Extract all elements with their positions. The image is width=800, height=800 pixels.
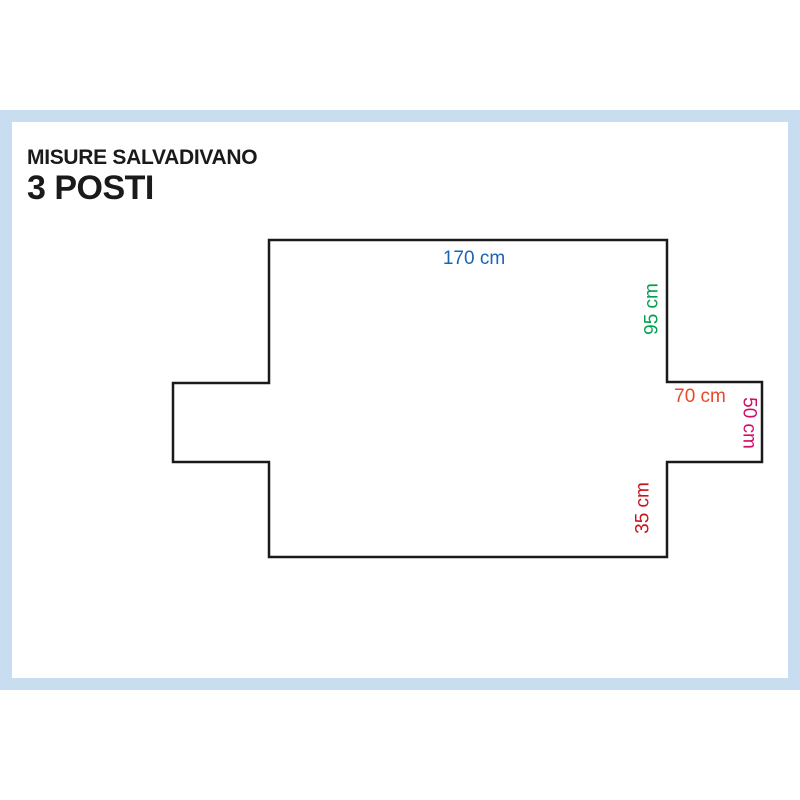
measurement-right-upper-height: 95 cm	[642, 283, 663, 335]
measurement-diagram: 170 cm 95 cm 70 cm 50 cm 35 cm	[0, 0, 800, 800]
page-canvas: MISURE SALVADIVANO 3 POSTI 170 cm 95 cm …	[0, 0, 800, 800]
measurement-right-arm-height: 50 cm	[739, 397, 760, 449]
measurement-right-arm-width: 70 cm	[674, 386, 726, 407]
measurement-right-lower-height: 35 cm	[633, 482, 654, 534]
measurement-top-width: 170 cm	[443, 248, 505, 269]
